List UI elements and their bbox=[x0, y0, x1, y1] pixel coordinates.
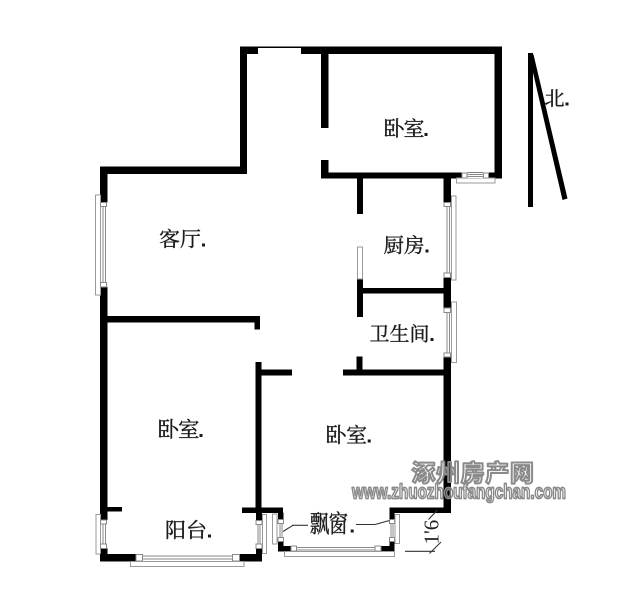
svg-text:www.zhuozhoufangchan.com: www.zhuozhoufangchan.com bbox=[351, 482, 566, 504]
svg-text:1'6: 1'6 bbox=[420, 520, 444, 545]
